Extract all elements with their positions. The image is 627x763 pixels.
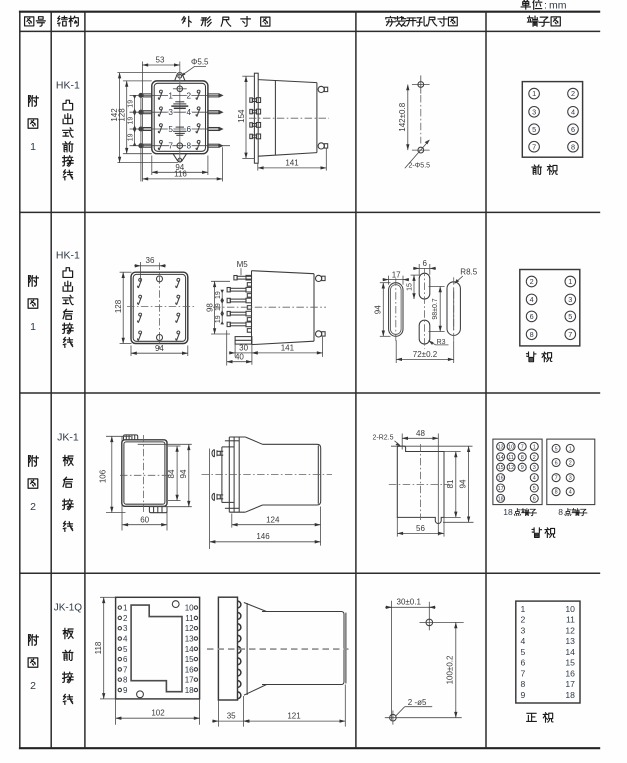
svg-text:116: 116: [174, 170, 187, 179]
svg-text:16: 16: [185, 665, 194, 674]
svg-text:8: 8: [187, 142, 192, 151]
svg-text:30: 30: [239, 344, 248, 353]
svg-text:2: 2: [123, 614, 128, 623]
svg-text:8: 8: [521, 455, 524, 461]
svg-text:10: 10: [508, 444, 514, 450]
svg-text:2: 2: [533, 455, 536, 461]
svg-text:4: 4: [569, 490, 572, 496]
svg-text:19: 19: [215, 303, 222, 311]
svg-text:3: 3: [521, 625, 526, 635]
svg-text:6: 6: [521, 658, 526, 668]
svg-text:8: 8: [555, 490, 558, 496]
svg-text:2: 2: [187, 91, 192, 100]
svg-text:7: 7: [521, 669, 526, 679]
svg-text:1: 1: [533, 444, 536, 450]
svg-text:56: 56: [416, 524, 425, 533]
svg-text:2: 2: [521, 615, 526, 625]
svg-text:1: 1: [123, 604, 128, 613]
svg-text:14: 14: [185, 645, 194, 654]
svg-text:84: 84: [167, 469, 176, 478]
svg-text:3: 3: [533, 465, 536, 471]
svg-text:3: 3: [568, 295, 572, 304]
svg-text:4: 4: [187, 108, 192, 117]
svg-text:8: 8: [123, 676, 128, 685]
svg-text:6: 6: [187, 125, 192, 134]
svg-text:17: 17: [498, 486, 504, 492]
svg-text:15: 15: [498, 465, 504, 471]
svg-text:16: 16: [498, 476, 504, 482]
svg-text:2 -ø5: 2 -ø5: [408, 698, 427, 707]
svg-text:146: 146: [256, 532, 270, 541]
svg-text:142±0.8: 142±0.8: [398, 102, 407, 131]
svg-text:12: 12: [508, 465, 514, 471]
svg-text:3: 3: [569, 476, 572, 482]
svg-text:6: 6: [123, 655, 128, 664]
svg-text:7: 7: [555, 476, 558, 482]
svg-text:94: 94: [155, 344, 164, 353]
svg-text:3: 3: [532, 107, 536, 116]
svg-text:4: 4: [521, 636, 526, 646]
svg-text:7: 7: [168, 142, 173, 151]
svg-text:JK-1Q: JK-1Q: [54, 603, 83, 614]
svg-text:13: 13: [565, 636, 575, 646]
svg-text:11: 11: [566, 615, 575, 625]
svg-text:18: 18: [503, 507, 513, 517]
svg-text:10: 10: [185, 604, 194, 613]
svg-text:19: 19: [215, 291, 222, 299]
svg-text:5: 5: [123, 645, 128, 654]
svg-text:17: 17: [392, 270, 401, 279]
svg-text:72±0.2: 72±0.2: [413, 350, 438, 359]
svg-text:19: 19: [127, 100, 134, 108]
svg-text:1: 1: [532, 89, 536, 98]
svg-text:M5: M5: [237, 260, 249, 269]
svg-text:17: 17: [185, 676, 194, 685]
svg-text:R3: R3: [437, 339, 446, 346]
svg-text:4: 4: [530, 295, 534, 304]
svg-text:94: 94: [179, 469, 188, 478]
svg-text:124: 124: [266, 515, 280, 524]
svg-text:12: 12: [185, 624, 194, 633]
svg-text:18: 18: [185, 686, 194, 695]
svg-text:11: 11: [508, 455, 514, 461]
svg-text:5: 5: [168, 125, 173, 134]
svg-text:1: 1: [30, 141, 36, 153]
svg-text:19: 19: [127, 117, 134, 125]
svg-text:9: 9: [123, 686, 128, 695]
svg-text:10: 10: [565, 604, 575, 614]
svg-text:81: 81: [446, 479, 455, 488]
svg-text:17: 17: [565, 679, 575, 689]
svg-text:2-Φ5.5: 2-Φ5.5: [409, 162, 431, 169]
svg-text:15: 15: [565, 658, 575, 668]
svg-text:19: 19: [127, 133, 134, 141]
svg-text:8: 8: [530, 330, 534, 339]
svg-text:3: 3: [168, 108, 173, 117]
svg-text:8: 8: [571, 142, 575, 151]
svg-text:40: 40: [235, 352, 244, 361]
svg-text:15: 15: [406, 283, 413, 291]
svg-text:13: 13: [498, 444, 504, 450]
svg-text:4: 4: [123, 635, 128, 644]
svg-text:2: 2: [30, 680, 36, 692]
svg-text:mm: mm: [549, 0, 567, 12]
svg-text:14: 14: [498, 455, 504, 461]
svg-text:11: 11: [185, 614, 194, 623]
svg-text:35: 35: [227, 712, 236, 721]
svg-text:53: 53: [156, 56, 165, 65]
svg-text:94: 94: [459, 479, 468, 488]
svg-text:1: 1: [569, 446, 572, 452]
svg-text:106: 106: [99, 469, 108, 483]
svg-text:R8.5: R8.5: [460, 268, 477, 277]
svg-text:3: 3: [123, 624, 128, 633]
svg-text:13: 13: [185, 635, 194, 644]
svg-text:8: 8: [558, 507, 563, 517]
svg-text:12: 12: [565, 625, 575, 635]
svg-text:2: 2: [30, 501, 36, 513]
svg-text:98±0.7: 98±0.7: [432, 298, 439, 319]
svg-text:HK-1: HK-1: [56, 80, 80, 92]
svg-text:Φ5.5: Φ5.5: [191, 57, 209, 66]
svg-text:141: 141: [285, 159, 299, 168]
svg-text:7: 7: [532, 142, 536, 151]
svg-text:141: 141: [281, 344, 295, 353]
svg-text:2: 2: [569, 461, 572, 467]
svg-text:128: 128: [118, 108, 127, 122]
svg-text:154: 154: [237, 109, 246, 123]
svg-text:14: 14: [565, 647, 575, 657]
svg-text:2: 2: [571, 89, 575, 98]
svg-text:48: 48: [416, 429, 425, 438]
svg-text:6: 6: [533, 496, 536, 502]
svg-text:1: 1: [568, 277, 572, 286]
svg-text:5: 5: [521, 647, 526, 657]
svg-text:4: 4: [571, 107, 575, 116]
svg-text:8: 8: [521, 679, 526, 689]
svg-text:1: 1: [30, 321, 36, 333]
svg-text:2-R2.5: 2-R2.5: [373, 435, 394, 442]
svg-text:2: 2: [530, 277, 534, 286]
svg-text:6: 6: [422, 259, 427, 268]
svg-text:5: 5: [555, 446, 558, 452]
svg-text:100±0.2: 100±0.2: [445, 655, 454, 684]
svg-text:98: 98: [205, 303, 214, 312]
svg-text:128: 128: [114, 299, 123, 313]
svg-text:5: 5: [532, 125, 536, 134]
svg-text:5: 5: [568, 312, 572, 321]
svg-text:102: 102: [151, 709, 165, 718]
svg-text:6: 6: [571, 125, 575, 134]
svg-text:JK-1: JK-1: [57, 432, 79, 444]
svg-text:5: 5: [533, 486, 536, 492]
svg-text:7: 7: [568, 330, 572, 339]
svg-text:19: 19: [215, 315, 222, 323]
svg-text:4: 4: [533, 476, 536, 482]
svg-text:6: 6: [555, 461, 558, 467]
svg-text:118: 118: [94, 641, 103, 654]
svg-text:18: 18: [565, 690, 575, 700]
svg-text:36: 36: [146, 256, 155, 265]
svg-text:7: 7: [123, 665, 128, 674]
svg-text:HK-1: HK-1: [56, 250, 80, 262]
svg-text:6: 6: [530, 312, 534, 321]
svg-text:18: 18: [498, 496, 504, 502]
svg-text:30±0.1: 30±0.1: [397, 598, 422, 607]
svg-text:9: 9: [521, 690, 526, 700]
svg-text:7: 7: [521, 444, 524, 450]
svg-text:94: 94: [373, 305, 382, 314]
svg-text::: :: [544, 0, 547, 12]
svg-text:9: 9: [521, 465, 524, 471]
svg-text:121: 121: [287, 712, 301, 721]
svg-text:60: 60: [140, 515, 149, 524]
svg-text:15: 15: [185, 655, 194, 664]
svg-text:1: 1: [168, 91, 173, 100]
svg-text:16: 16: [565, 669, 575, 679]
svg-text:1: 1: [521, 604, 526, 614]
